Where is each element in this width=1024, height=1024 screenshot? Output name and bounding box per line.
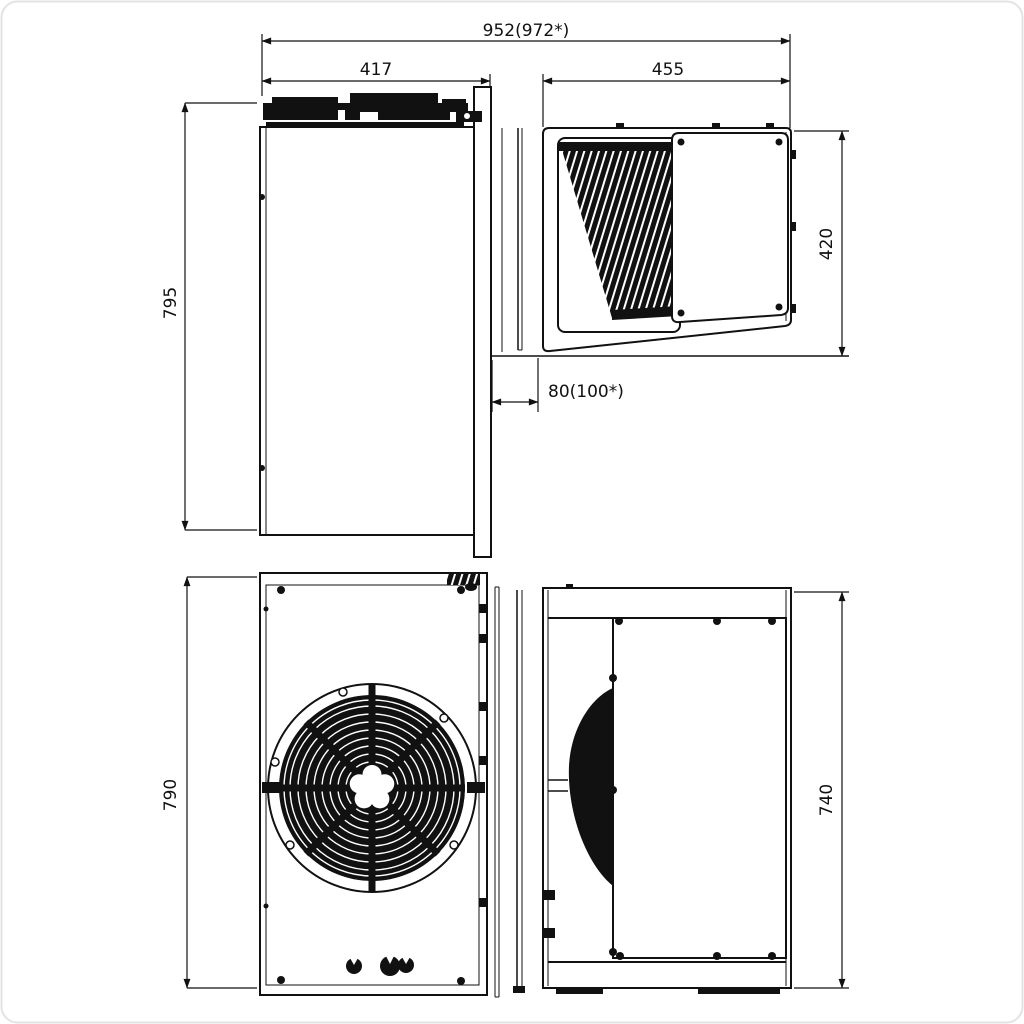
evaporator-door-panel	[672, 133, 788, 322]
wall-flange-panel	[474, 87, 491, 557]
dim-side-depth: 740	[794, 592, 849, 988]
base-foot	[698, 988, 780, 994]
grille-side-tab	[262, 782, 280, 793]
dim-right-depth: 420	[794, 131, 849, 356]
screw-dot	[768, 952, 776, 960]
screw-dot	[713, 617, 721, 625]
screw-dot	[609, 674, 617, 682]
dim-left-height: 795	[161, 103, 257, 530]
base-foot	[556, 988, 603, 994]
screw-dot	[768, 617, 776, 625]
edge-tab	[544, 890, 555, 900]
edge-tab	[479, 634, 487, 643]
fins-notch	[338, 110, 345, 120]
dim-label-left-height: 795	[161, 287, 181, 319]
dim-label-left-width: 417	[360, 60, 392, 80]
front-view	[260, 573, 487, 995]
dim-label-side-depth: 740	[817, 784, 837, 816]
screw-dot	[678, 310, 685, 317]
monoblock-dimension-drawing: 952(972*) 417 455 795 420 80(100*) 790	[0, 0, 1024, 1024]
dim-left-width: 417	[262, 60, 490, 96]
technical-drawing-page: 952(972*) 417 455 795 420 80(100*) 790	[0, 0, 1024, 1024]
image-frame	[2, 2, 1023, 1023]
edge-tab	[479, 756, 487, 765]
dim-right-width: 455	[543, 60, 790, 127]
screw-tab	[766, 123, 774, 128]
screw-dot	[609, 948, 617, 956]
screw-dot	[277, 586, 285, 594]
fins-bump	[350, 93, 438, 104]
screw-tab	[566, 584, 573, 589]
coil-top-bar	[559, 142, 678, 151]
screw-dot	[457, 977, 465, 985]
fins-base-bar	[266, 122, 464, 126]
edge-tab	[544, 928, 555, 938]
screw-tab	[616, 123, 624, 128]
screw-tab	[791, 150, 796, 159]
corner-hatch-bracket	[447, 574, 480, 585]
screw-dot	[264, 607, 269, 612]
fins-bump	[272, 97, 338, 105]
screw-dot	[713, 952, 721, 960]
fins-bump	[442, 99, 466, 105]
dim-label-right-width: 455	[652, 60, 684, 80]
screw-dot	[277, 976, 285, 984]
dim-label-right-depth: 420	[817, 228, 837, 260]
screw-tab	[712, 123, 720, 128]
screw-dot	[609, 786, 617, 794]
fins-notch	[360, 112, 378, 120]
top-view	[490, 123, 849, 356]
screw-dot	[616, 952, 624, 960]
screw-dot	[457, 586, 465, 594]
screw-dot	[776, 304, 783, 311]
dim-front-height: 790	[161, 577, 257, 988]
corner-bolt	[465, 583, 477, 591]
screw-dot	[259, 465, 265, 471]
screw-tab	[791, 222, 796, 231]
condenser-fins	[263, 93, 468, 126]
dim-label-front-height: 790	[161, 779, 181, 811]
screw-dot	[678, 139, 685, 146]
rear-side-view	[495, 584, 791, 997]
dim-wall-gap: 80(100*)	[492, 358, 624, 412]
pipe-hole	[464, 113, 470, 119]
dim-label-overall-width: 952(972*)	[483, 21, 570, 41]
side-view	[259, 87, 491, 557]
strip-foot	[513, 986, 525, 993]
screw-dot	[615, 617, 623, 625]
dim-label-wall-gap: 80(100*)	[548, 382, 624, 402]
screw-tab	[791, 304, 796, 313]
side-view-body	[260, 127, 474, 535]
inner-panel	[613, 618, 786, 958]
edge-tab	[479, 898, 487, 907]
edge-tab	[479, 702, 487, 711]
screw-dot	[776, 139, 783, 146]
screw-dot	[259, 194, 265, 200]
edge-tab	[479, 604, 487, 613]
screw-dot	[264, 904, 269, 909]
